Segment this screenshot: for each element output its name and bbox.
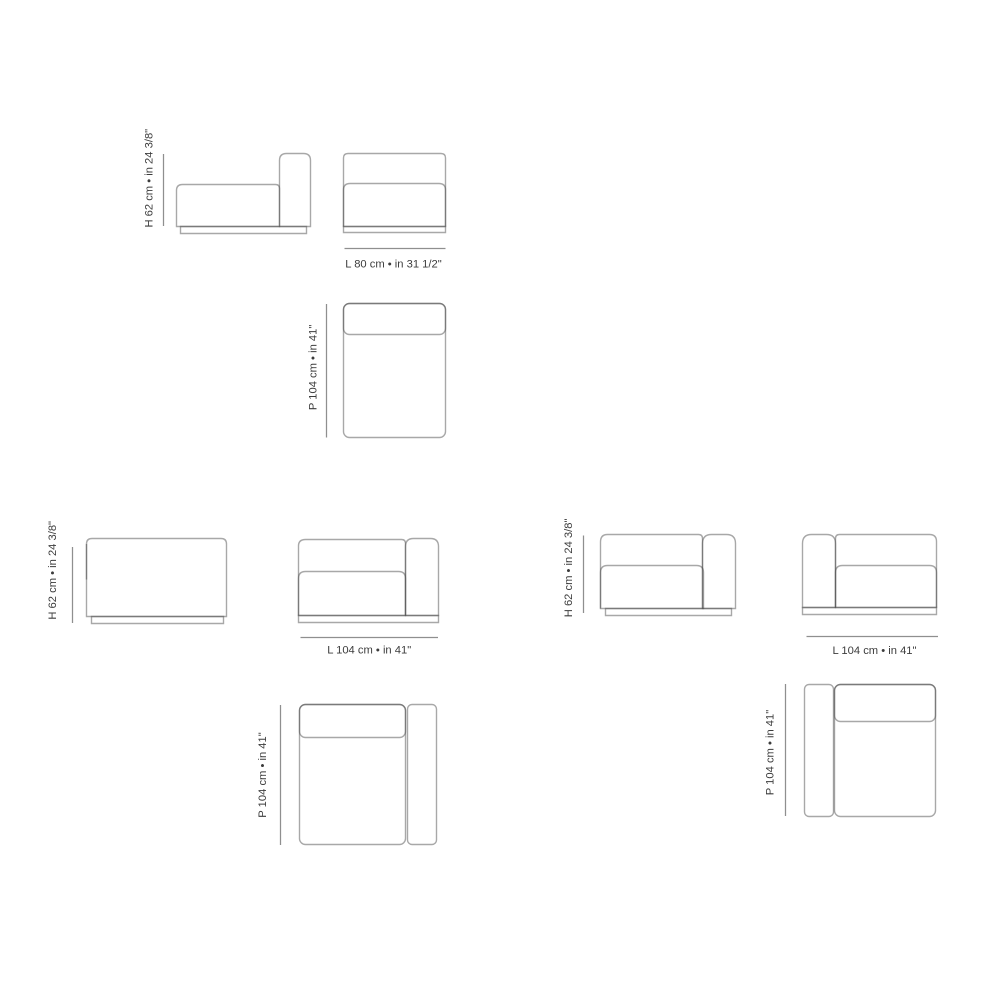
- svg-text:L 104 cm • in 41": L 104 cm • in 41": [833, 645, 917, 657]
- svg-text:L 80 cm • in 31 1/2": L 80 cm • in 31 1/2": [345, 259, 441, 271]
- svg-text:L 104 cm • in 41": L 104 cm • in 41": [327, 645, 411, 657]
- svg-text:H 62 cm • in 24 3/8": H 62 cm • in 24 3/8": [563, 519, 575, 618]
- svg-text:H 62 cm • in 24 3/8": H 62 cm • in 24 3/8": [47, 521, 59, 620]
- svg-text:P 104 cm • in 41": P 104 cm • in 41": [257, 732, 269, 817]
- svg-text:P 104 cm • in 41": P 104 cm • in 41": [765, 710, 777, 795]
- svg-text:P 104 cm • in 41": P 104 cm • in 41": [308, 325, 320, 410]
- svg-text:H 62 cm • in 24 3/8": H 62 cm • in 24 3/8": [143, 129, 155, 228]
